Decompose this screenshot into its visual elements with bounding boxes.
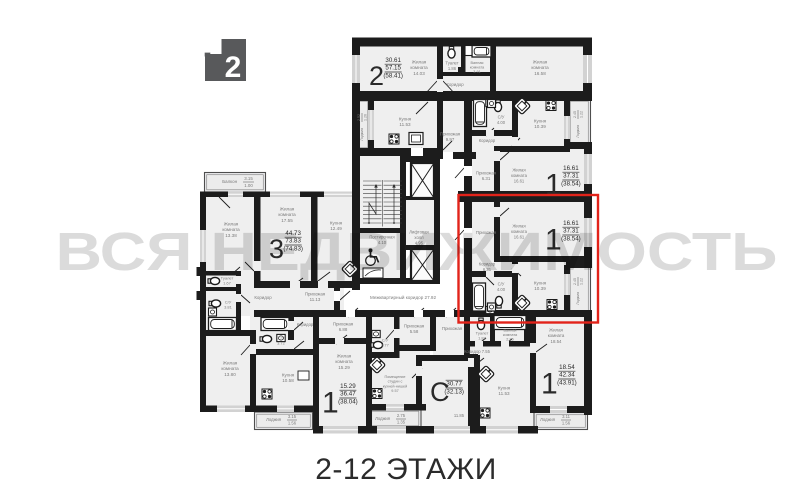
svg-text:комната: комната xyxy=(548,333,565,338)
svg-text:2-12 ЭТАЖИ: 2-12 ЭТАЖИ xyxy=(315,453,497,486)
svg-text:Коридор 7.55: Коридор 7.55 xyxy=(464,349,491,354)
svg-text:Лоджия: Лоджия xyxy=(540,417,555,422)
svg-text:16.58: 16.58 xyxy=(534,71,546,76)
svg-text:Межквартирный коридор 27.92: Межквартирный коридор 27.92 xyxy=(370,294,437,300)
svg-text:ВСЯ НЕДВИЖИМОСТЬ: ВСЯ НЕДВИЖИМОСТЬ xyxy=(56,222,778,282)
svg-text:(58.41): (58.41) xyxy=(383,72,403,79)
svg-text:Коридор: Коридор xyxy=(297,322,314,327)
svg-text:36.47: 36.47 xyxy=(340,391,356,398)
svg-text:2.75: 2.75 xyxy=(397,413,406,418)
svg-text:1.56: 1.56 xyxy=(562,421,571,426)
svg-text:3.15: 3.15 xyxy=(288,414,297,419)
svg-text:Прихожая: Прихожая xyxy=(305,291,326,296)
svg-text:4.00: 4.00 xyxy=(497,120,506,125)
svg-text:Жилая: Жилая xyxy=(337,353,352,358)
svg-text:10.58: 10.58 xyxy=(282,378,294,383)
svg-text:Прихожая: Прихожая xyxy=(404,323,425,328)
svg-text:3.72: 3.72 xyxy=(277,341,286,346)
svg-text:комната: комната xyxy=(221,366,239,371)
svg-text:1.00: 1.00 xyxy=(244,183,253,188)
svg-text:комната: комната xyxy=(503,333,518,337)
svg-text:Прихожая: Прихожая xyxy=(333,321,354,326)
svg-text:30.77: 30.77 xyxy=(446,381,462,388)
svg-text:18.54: 18.54 xyxy=(559,364,575,371)
svg-text:Лоджия: Лоджия xyxy=(266,417,281,422)
svg-text:1.35: 1.35 xyxy=(397,420,406,425)
svg-text:Жилая: Жилая xyxy=(412,59,427,64)
svg-text:Лоджия: Лоджия xyxy=(576,125,580,138)
svg-text:1.56: 1.56 xyxy=(288,421,297,426)
svg-text:1: 1 xyxy=(545,169,562,202)
svg-text:комната: комната xyxy=(531,65,549,70)
svg-text:6.31: 6.31 xyxy=(482,176,491,181)
svg-text:Туалет: Туалет xyxy=(445,60,458,65)
svg-text:1.26: 1.26 xyxy=(364,114,368,121)
svg-text:9.57: 9.57 xyxy=(391,389,398,393)
svg-text:3.91: 3.91 xyxy=(473,70,480,74)
svg-text:Коридор: Коридор xyxy=(479,138,496,143)
svg-text:Кухня: Кухня xyxy=(399,116,412,121)
svg-text:11.13: 11.13 xyxy=(310,297,321,302)
svg-text:16.61: 16.61 xyxy=(514,179,525,184)
svg-text:С/У: С/У xyxy=(498,281,505,286)
svg-text:37.31: 37.31 xyxy=(563,173,579,180)
svg-text:Кухня: Кухня xyxy=(282,372,295,377)
svg-text:1.86: 1.86 xyxy=(448,66,457,71)
svg-text:Помещение: Помещение xyxy=(384,375,405,379)
svg-text:1: 1 xyxy=(322,387,339,420)
svg-text:студии с: студии с xyxy=(388,380,403,384)
svg-text:С/У: С/У xyxy=(498,114,505,119)
svg-text:2.45: 2.45 xyxy=(573,111,577,118)
svg-text:57.15: 57.15 xyxy=(385,65,401,72)
svg-text:13.80: 13.80 xyxy=(224,372,236,377)
svg-text:1: 1 xyxy=(541,368,558,401)
svg-text:2.52: 2.52 xyxy=(357,114,361,121)
svg-text:15.29: 15.29 xyxy=(340,383,356,390)
svg-text:15.29: 15.29 xyxy=(338,365,350,370)
svg-text:11.53: 11.53 xyxy=(399,122,411,127)
svg-text:11.85: 11.85 xyxy=(454,413,465,418)
svg-text:Кухня: Кухня xyxy=(534,118,547,123)
svg-text:Прихожая: Прихожая xyxy=(440,131,461,136)
svg-text:комната: комната xyxy=(470,66,485,70)
svg-text:1.22: 1.22 xyxy=(580,111,584,118)
svg-text:Прихожая: Прихожая xyxy=(476,170,497,175)
svg-text:6.88: 6.88 xyxy=(339,327,348,332)
svg-text:Жилая: Жилая xyxy=(512,168,525,173)
svg-text:3.77: 3.77 xyxy=(381,343,390,348)
svg-text:комната: комната xyxy=(335,359,353,364)
svg-text:2.85: 2.85 xyxy=(506,337,513,341)
svg-text:Жилая: Жилая xyxy=(280,206,295,211)
svg-text:комната: комната xyxy=(511,173,528,178)
svg-text:1.83: 1.83 xyxy=(478,336,487,341)
svg-text:11.53: 11.53 xyxy=(498,391,510,396)
svg-text:3.11: 3.11 xyxy=(562,414,571,419)
svg-text:кухней-нишей: кухней-нишей xyxy=(383,384,408,388)
svg-text:14.03: 14.03 xyxy=(413,71,425,76)
svg-text:30.61: 30.61 xyxy=(385,57,401,64)
svg-text:(38.04): (38.04) xyxy=(338,398,358,405)
svg-text:2: 2 xyxy=(225,51,242,84)
svg-text:комната: комната xyxy=(410,65,428,70)
svg-text:(32.13): (32.13) xyxy=(444,388,464,395)
svg-text:Коридор: Коридор xyxy=(446,82,464,87)
svg-text:3.81: 3.81 xyxy=(224,305,233,310)
svg-text:Лоджия: Лоджия xyxy=(375,416,390,421)
svg-text:9.97: 9.97 xyxy=(446,137,455,142)
svg-text:10.39: 10.39 xyxy=(534,286,546,291)
svg-text:Ванная: Ванная xyxy=(503,329,516,333)
svg-text:(43.91): (43.91) xyxy=(557,379,577,386)
svg-text:2: 2 xyxy=(369,61,384,91)
svg-text:Балкон: Балкон xyxy=(222,179,237,184)
svg-text:Кухня: Кухня xyxy=(498,385,511,390)
svg-text:Прихожая: Прихожая xyxy=(442,326,463,331)
svg-text:3.15: 3.15 xyxy=(244,176,253,181)
svg-text:Жилая: Жилая xyxy=(549,328,564,333)
svg-text:5.58: 5.58 xyxy=(410,329,419,334)
svg-text:10.39: 10.39 xyxy=(534,124,546,129)
svg-text:(38.54): (38.54) xyxy=(561,180,581,187)
svg-text:Жилая: Жилая xyxy=(223,360,238,365)
svg-text:комната: комната xyxy=(278,212,296,217)
svg-text:42.34: 42.34 xyxy=(559,372,575,379)
svg-text:18.54: 18.54 xyxy=(551,339,563,344)
svg-text:Жилая: Жилая xyxy=(533,59,548,64)
svg-text:16.61: 16.61 xyxy=(563,165,579,172)
svg-text:4.00: 4.00 xyxy=(497,287,506,292)
svg-text:Лоджия: Лоджия xyxy=(360,128,364,141)
svg-text:Лоджия: Лоджия xyxy=(576,292,580,305)
svg-text:Ванная: Ванная xyxy=(470,61,483,65)
svg-text:Коридор: Коридор xyxy=(254,295,272,300)
